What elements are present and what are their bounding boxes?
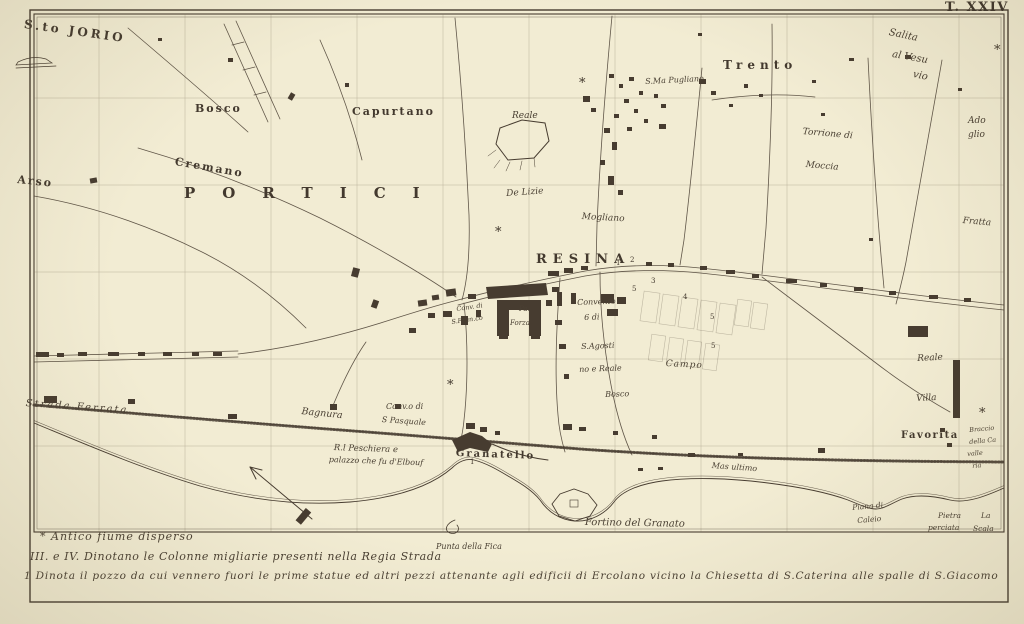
map-label: La xyxy=(981,512,990,520)
map-label: * xyxy=(495,226,502,239)
legend-line-milestones: III. e IV. Dinotano le Colonne migliarie… xyxy=(30,551,442,562)
map-label: 1 xyxy=(616,260,620,267)
map-label: Pa. xyxy=(519,306,530,313)
map-label: Reale xyxy=(512,112,538,121)
map-label: Caleio xyxy=(857,515,882,525)
map-label: 2 xyxy=(630,257,634,264)
map-label: Scala xyxy=(973,525,994,533)
map-label: Villa xyxy=(916,394,937,404)
north-arrow-icon xyxy=(250,467,312,525)
map-label: * xyxy=(994,44,1001,57)
map-label: Reale xyxy=(917,354,943,364)
map-label: Favorita xyxy=(901,431,959,441)
map-label: 6 di xyxy=(584,313,600,322)
map-label: Bosco xyxy=(605,390,629,399)
map-label: Fortino del Granato xyxy=(585,518,685,530)
map-label: * xyxy=(979,407,986,420)
legend-line-well: 1 Dinota il pozzo da cui vennero fuori l… xyxy=(24,571,999,582)
hill-hatch xyxy=(16,58,56,68)
plate-number: T. XXIV xyxy=(945,0,1009,15)
map-label: Conv.o di xyxy=(386,403,423,411)
map-label: Convento xyxy=(577,298,616,307)
map-label: 5 xyxy=(711,343,715,350)
map-label: glio xyxy=(968,131,985,140)
punta-swirl xyxy=(446,520,458,533)
map-label: PORTICI xyxy=(184,186,447,201)
map-label: 5 xyxy=(710,314,714,321)
map-label: * xyxy=(447,379,454,392)
buildings xyxy=(36,33,971,471)
map-label: Pietra xyxy=(938,512,961,520)
map-label: Punta della Fica xyxy=(436,543,502,551)
map-label: 4 xyxy=(683,294,687,301)
map-label: Ado xyxy=(968,117,986,126)
map-label: Trento xyxy=(723,59,797,71)
map-label: R.l Peschiera e xyxy=(334,444,398,455)
royal-palace xyxy=(486,283,548,339)
map-label: 5 xyxy=(632,286,636,293)
map-label: Campo xyxy=(666,360,703,371)
map-label: valle xyxy=(967,450,983,458)
map-label: 3 xyxy=(651,278,655,285)
roads xyxy=(34,16,1004,455)
legend-line-ancient-river: * Antico fiume disperso xyxy=(40,531,194,542)
map-label: Capurtano xyxy=(352,106,435,117)
map-label: 1 xyxy=(470,459,474,466)
map-label: no e Reale xyxy=(579,365,622,374)
map-label: Arso xyxy=(17,174,54,189)
map-label: Bosco xyxy=(195,103,242,114)
map-label: ria xyxy=(972,462,982,469)
historical-map-canvas: T. XXIV S.to JORIOBoscoCapurtanoCremanoA… xyxy=(0,0,1024,624)
map-label: * xyxy=(579,77,586,90)
map-label: perciata xyxy=(928,524,959,532)
fort-reale xyxy=(488,120,549,171)
map-label: Forza xyxy=(510,320,530,327)
map-label: S.Agosti xyxy=(581,342,615,351)
